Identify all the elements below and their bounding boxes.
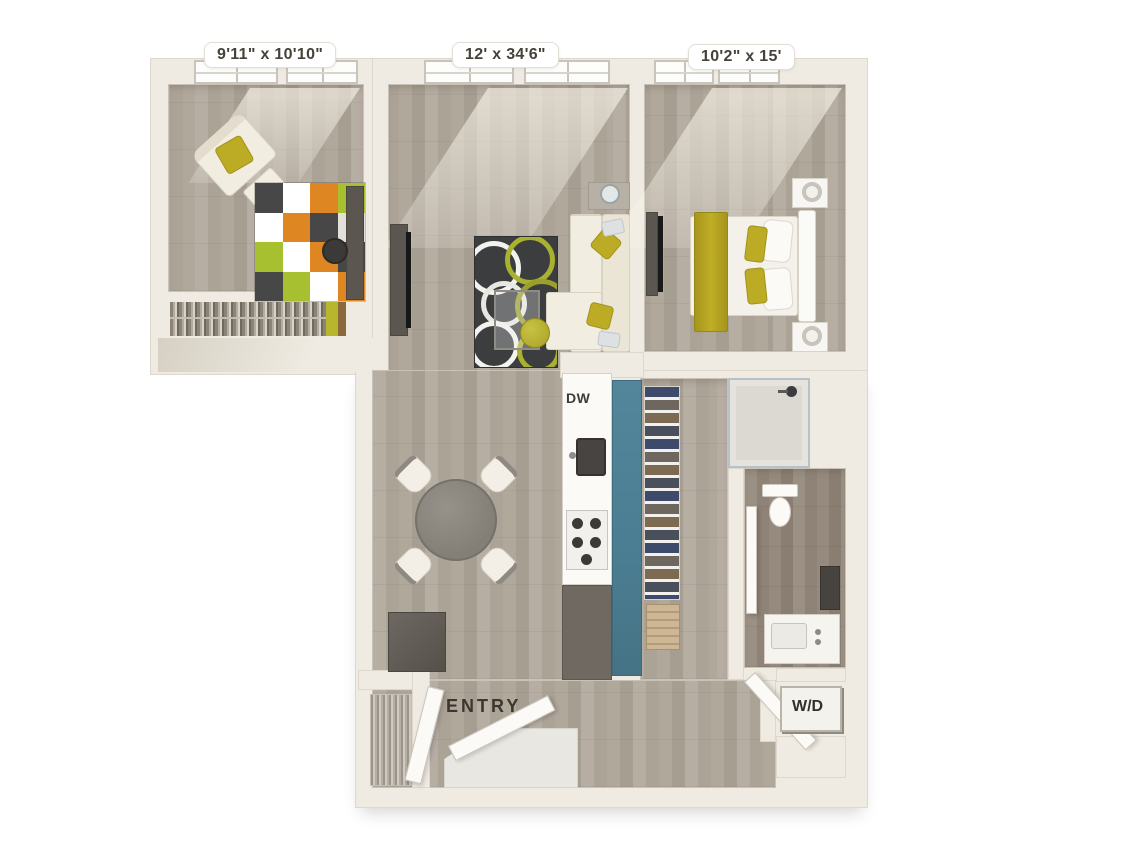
table-lamp	[802, 182, 822, 202]
television	[406, 232, 411, 328]
den-desk	[346, 186, 364, 300]
bedroom-dimension-label: 10'2" x 15'	[688, 44, 795, 70]
bedroom-television	[658, 216, 663, 292]
kitchen-lower-cabinet	[562, 585, 612, 680]
living-dimension-label: 12' x 34'6"	[452, 42, 559, 68]
vanity-sink	[771, 623, 807, 649]
stove-burner	[572, 518, 583, 529]
den-wing-shading	[158, 338, 374, 372]
den-closet-clothes	[170, 302, 346, 336]
dishwasher-label: DW	[566, 390, 590, 406]
bathroom-door-open-inside	[746, 506, 757, 614]
dining-table	[415, 479, 497, 561]
vanity-faucet	[815, 639, 821, 645]
den-closet-item-green	[326, 302, 338, 336]
pouf	[520, 318, 550, 348]
bed-throw-blanket	[694, 212, 728, 332]
side-table-decor	[600, 184, 620, 204]
vanity-faucet	[815, 629, 821, 635]
stove-burner	[590, 537, 601, 548]
floor-plan: 9'11" x 10'10" 12' x 34'6" 10'2" x 15' D…	[0, 0, 1124, 844]
sideboard-cabinet	[388, 612, 446, 672]
den-dimension-label: 9'11" x 10'10"	[204, 42, 336, 68]
shower	[728, 378, 810, 468]
washer-dryer-label: W/D	[792, 698, 823, 716]
bed-headboard	[798, 210, 816, 322]
entry-label: ENTRY	[446, 696, 521, 717]
stove-burner	[590, 518, 601, 529]
toilet-bowl	[769, 497, 791, 527]
bed-pillow-accent	[744, 267, 768, 305]
bathroom-vanity	[764, 614, 840, 664]
table-lamp	[802, 326, 822, 346]
bedroom-tv-console	[646, 212, 658, 296]
wall-bath-entry	[776, 668, 846, 682]
closet-hanging-clothes	[644, 386, 680, 600]
stove-burner	[581, 554, 592, 565]
shower-arm	[778, 390, 788, 393]
stove	[566, 510, 608, 570]
closet-shoe-rack	[646, 604, 680, 650]
sofa-pillow-gray	[597, 331, 621, 349]
stove-burner	[572, 537, 583, 548]
kitchen-sink	[576, 438, 606, 476]
rug-circle	[505, 236, 555, 285]
wall-closet-bath	[728, 468, 744, 680]
kitchen-faucet	[569, 452, 576, 459]
towel-cabinet	[820, 566, 840, 610]
den-closet-item-brown	[338, 302, 346, 336]
kitchen-island-accent-panel	[612, 380, 642, 676]
toilet-tank	[762, 484, 798, 497]
den-office-chair	[322, 238, 348, 264]
